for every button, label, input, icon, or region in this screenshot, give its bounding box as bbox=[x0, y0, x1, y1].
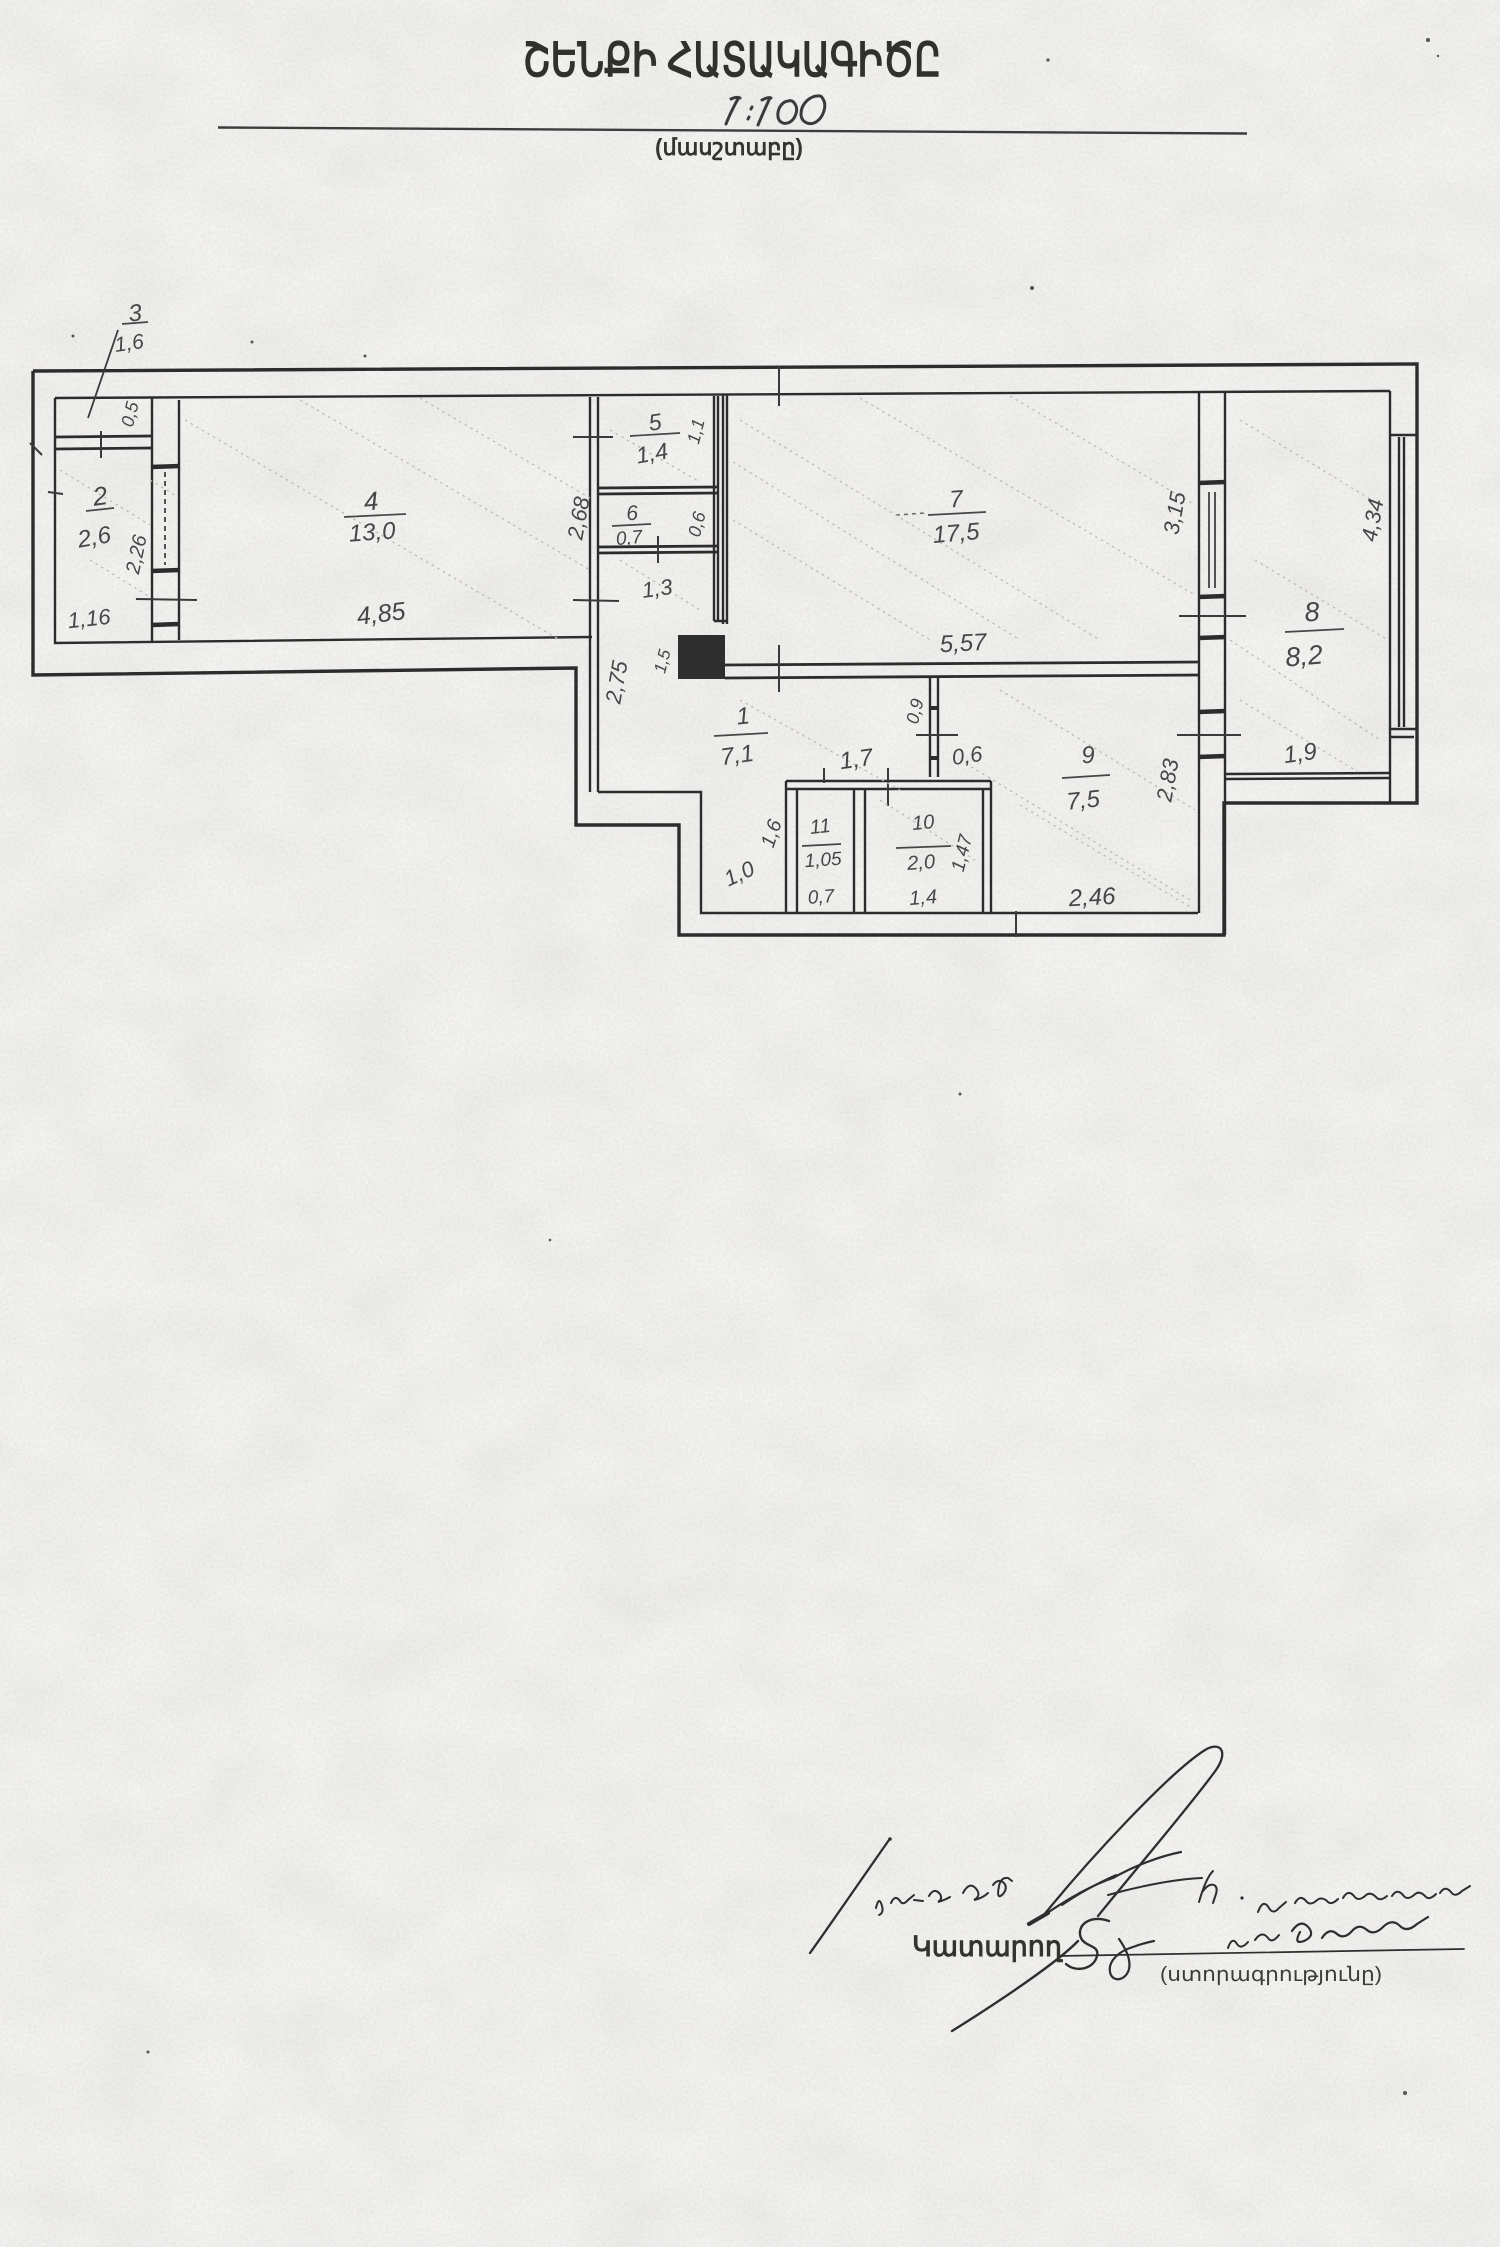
svg-text:7,5: 7,5 bbox=[1065, 785, 1102, 815]
svg-text:4,85: 4,85 bbox=[355, 597, 407, 631]
svg-text:1,3: 1,3 bbox=[640, 574, 675, 603]
svg-text:9: 9 bbox=[1080, 741, 1096, 769]
svg-text:17,5: 17,5 bbox=[932, 518, 982, 549]
svg-text:Կատարող: Կատարող bbox=[912, 1931, 1063, 1963]
svg-text:(մասշտաբը): (մասշտաբը) bbox=[655, 134, 803, 161]
svg-text:7,1: 7,1 bbox=[719, 740, 756, 771]
svg-text:ՇԵՆՔԻ ՀԱՏԱԿԱԳԻԾԸ: ՇԵՆՔԻ ՀԱՏԱԿԱԳԻԾԸ bbox=[523, 33, 941, 86]
svg-text:1,6: 1,6 bbox=[113, 330, 145, 357]
svg-text:2,0: 2,0 bbox=[906, 851, 936, 875]
svg-text:13,0: 13,0 bbox=[348, 517, 397, 547]
svg-text:1: 1 bbox=[735, 702, 751, 730]
svg-text:1,05: 1,05 bbox=[804, 849, 843, 873]
svg-text:1,4: 1,4 bbox=[908, 886, 937, 910]
svg-text:4: 4 bbox=[362, 485, 379, 516]
svg-text:1,7: 1,7 bbox=[838, 744, 876, 776]
svg-text:5,57: 5,57 bbox=[939, 629, 989, 658]
svg-text:11: 11 bbox=[809, 815, 832, 839]
svg-text:0,7: 0,7 bbox=[615, 527, 645, 550]
svg-text:2,46: 2,46 bbox=[1067, 883, 1117, 912]
svg-text:(ստորագրությունը): (ստորագրությունը) bbox=[1160, 1964, 1382, 1986]
svg-text:8,2: 8,2 bbox=[1284, 639, 1324, 672]
svg-text:1,9: 1,9 bbox=[1282, 738, 1319, 769]
svg-text:6: 6 bbox=[625, 502, 639, 526]
svg-text:0,7: 0,7 bbox=[807, 886, 836, 909]
svg-text:8: 8 bbox=[1303, 596, 1321, 627]
svg-text:1,4: 1,4 bbox=[634, 437, 670, 468]
svg-text:10: 10 bbox=[911, 811, 935, 835]
svg-text:1,16: 1,16 bbox=[66, 604, 112, 633]
svg-text:0,6: 0,6 bbox=[950, 741, 985, 770]
